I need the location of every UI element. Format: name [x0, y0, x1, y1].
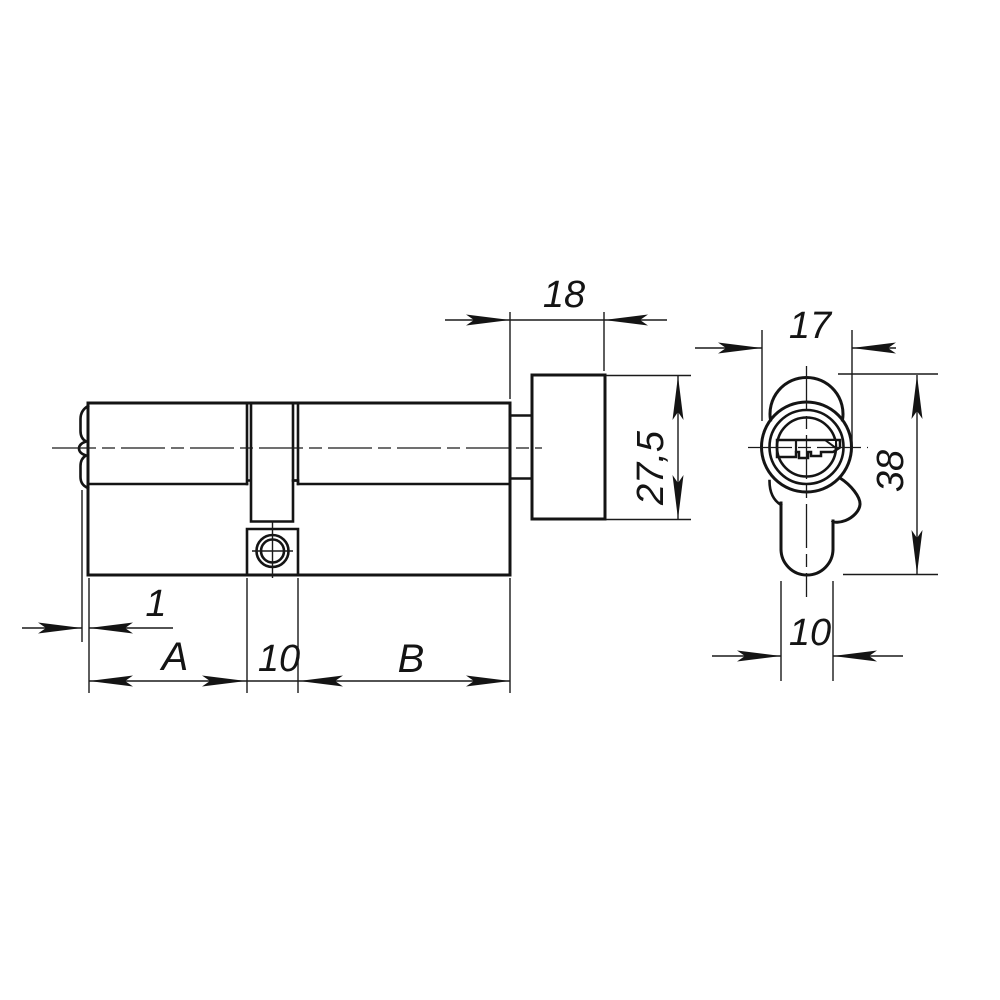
dim-label-knob-depth: 18	[543, 274, 585, 316]
thumbturn-neck	[510, 416, 532, 479]
dimension-knob-depth-18: 18	[445, 274, 667, 399]
dim-label-body-diameter: 17	[789, 305, 833, 347]
cam-lobe	[833, 478, 860, 522]
dimension-body-width-10: 10	[712, 581, 903, 681]
dimension-knob-diameter-27-5: 27,5	[606, 376, 691, 520]
cylinder-lock-drawing: 18 27,5 1 A 10 B 17 38	[0, 0, 1000, 1000]
dim-label-knob-diameter: 27,5	[630, 430, 672, 506]
dimension-body-diameter-17: 17	[695, 305, 896, 446]
dim-label-length-a: A	[160, 635, 189, 679]
thumbturn-knob	[532, 375, 605, 519]
keyway-profile	[777, 440, 840, 458]
dim-label-face-lip: 1	[145, 583, 166, 625]
dim-label-length-b: B	[398, 637, 425, 681]
front-view	[52, 375, 605, 578]
dim-label-body-width: 10	[789, 612, 831, 654]
side-view	[748, 366, 868, 597]
dimension-total-height-38: 38	[838, 374, 938, 575]
dim-label-cam-gap: 10	[258, 638, 300, 680]
keyway-notch	[825, 440, 836, 448]
dimension-face-lip-1: 1	[22, 490, 173, 642]
technical-drawing-page: 18 27,5 1 A 10 B 17 38	[0, 0, 1000, 1000]
dim-label-total-height: 38	[870, 450, 912, 492]
